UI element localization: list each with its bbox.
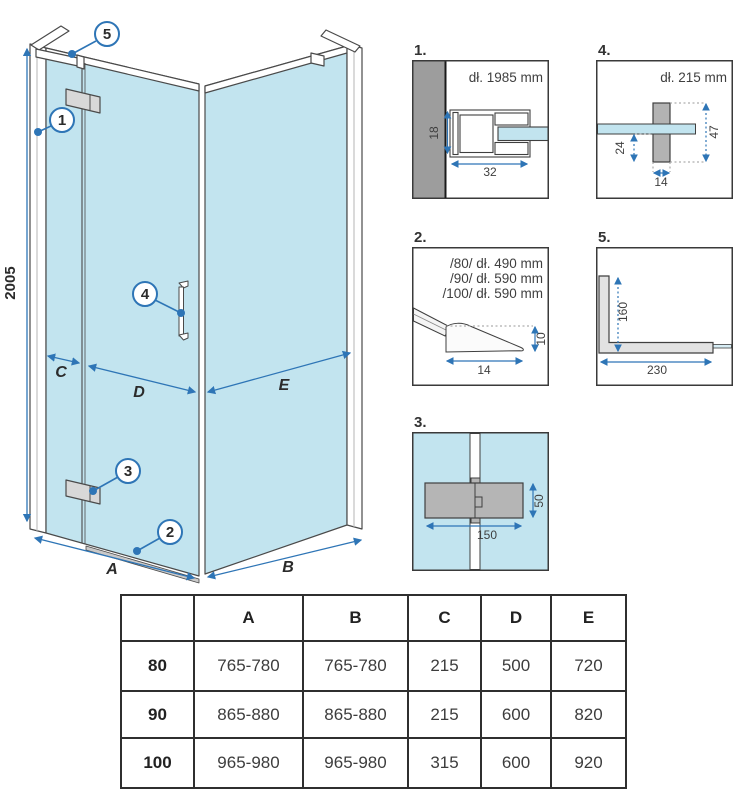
detail-3: 3. 50 150 [412, 410, 549, 572]
detail-2-line3: /100/ dł. 590 mm [442, 286, 543, 301]
callout-5: 5 [68, 22, 119, 58]
table-header-empty [121, 595, 194, 641]
detail-1-dim-18: 18 [427, 126, 441, 140]
table-row-100: 100 965-980 965-980 315 600 920 [121, 738, 626, 788]
svg-text:4: 4 [141, 286, 150, 303]
page: 2005 C D E A B 5 1 4 3 [0, 0, 751, 800]
detail-4: 4. dł. 215 mm 24 47 14 [596, 38, 733, 200]
detail-2-dim-14: 14 [477, 363, 491, 377]
detail-1-dim-32: 32 [483, 165, 497, 179]
dim-label-b: B [282, 559, 294, 576]
table-header-d: D [481, 595, 551, 641]
glass-section [598, 124, 696, 134]
table-cell: 965-980 [194, 738, 303, 788]
table-cell: 215 [408, 691, 481, 738]
wall-hinge-section [425, 478, 523, 523]
detail-2-dim-10: 10 [534, 332, 548, 346]
table-cell: 920 [551, 738, 626, 788]
left-wall-profile [30, 44, 46, 533]
detail-5-dim-160: 160 [616, 302, 630, 322]
table-header-row: A B C D E [121, 595, 626, 641]
detail-4-dim-24: 24 [613, 141, 627, 155]
size-table: A B C D E 80 765-780 765-780 215 500 720… [120, 594, 627, 789]
svg-text:1: 1 [58, 112, 66, 129]
dim-label-e: E [279, 377, 291, 394]
detail-4-title: dł. 215 mm [660, 70, 727, 85]
dim-label-d: D [133, 384, 145, 401]
height-dim-label: 2005 [2, 266, 19, 299]
dim-label-c: C [55, 364, 67, 381]
detail-4-dim-47: 47 [707, 125, 721, 139]
detail-4-label: 4. [598, 42, 611, 59]
row-label: 90 [121, 691, 194, 738]
svg-text:5: 5 [103, 26, 111, 43]
table-cell: 600 [481, 691, 551, 738]
table-cell: 765-780 [303, 641, 408, 691]
table-cell: 315 [408, 738, 481, 788]
detail-4-dim-14: 14 [654, 175, 668, 189]
detail-5-dim-230: 230 [647, 363, 667, 377]
table-cell: 720 [551, 641, 626, 691]
detail-3-dim-50: 50 [532, 494, 546, 508]
detail-1: 1. dł. 1985 mm 18 32 [412, 38, 549, 200]
table-header-b: B [303, 595, 408, 641]
detail-5-label: 5. [598, 229, 611, 246]
svg-text:3: 3 [124, 463, 132, 480]
detail-3-dim-150: 150 [477, 528, 497, 542]
dim-label-a: A [105, 561, 118, 578]
svg-text:2: 2 [166, 524, 174, 541]
row-label: 100 [121, 738, 194, 788]
right-glass-panel [205, 46, 347, 574]
table-cell: 965-980 [303, 738, 408, 788]
table-header-a: A [194, 595, 303, 641]
table-cell: 215 [408, 641, 481, 691]
detail-2-line1: /80/ dł. 490 mm [450, 256, 543, 271]
detail-2-label: 2. [414, 229, 427, 246]
table-cell: 600 [481, 738, 551, 788]
glass-edge-line [713, 345, 732, 349]
table-row-80: 80 765-780 765-780 215 500 720 [121, 641, 626, 691]
detail-1-title: dł. 1985 mm [469, 70, 543, 85]
detail-1-label: 1. [414, 42, 427, 59]
table-cell: 865-880 [194, 691, 303, 738]
detail-2-line2: /90/ dł. 590 mm [450, 271, 543, 286]
table-header-c: C [408, 595, 481, 641]
table-header-e: E [551, 595, 626, 641]
table-cell: 865-880 [303, 691, 408, 738]
table-cell: 820 [551, 691, 626, 738]
table-cell: 500 [481, 641, 551, 691]
detail-3-label: 3. [414, 414, 427, 431]
table-cell: 765-780 [194, 641, 303, 691]
detail-5: 5. 160 230 [596, 225, 733, 387]
row-label: 80 [121, 641, 194, 691]
table-row-90: 90 865-880 865-880 215 600 820 [121, 691, 626, 738]
shower-enclosure-drawing: 2005 C D E A B 5 1 4 3 [0, 0, 400, 600]
detail-2: 2. /80/ dł. 490 mm /90/ dł. 590 mm /100/… [412, 225, 549, 387]
